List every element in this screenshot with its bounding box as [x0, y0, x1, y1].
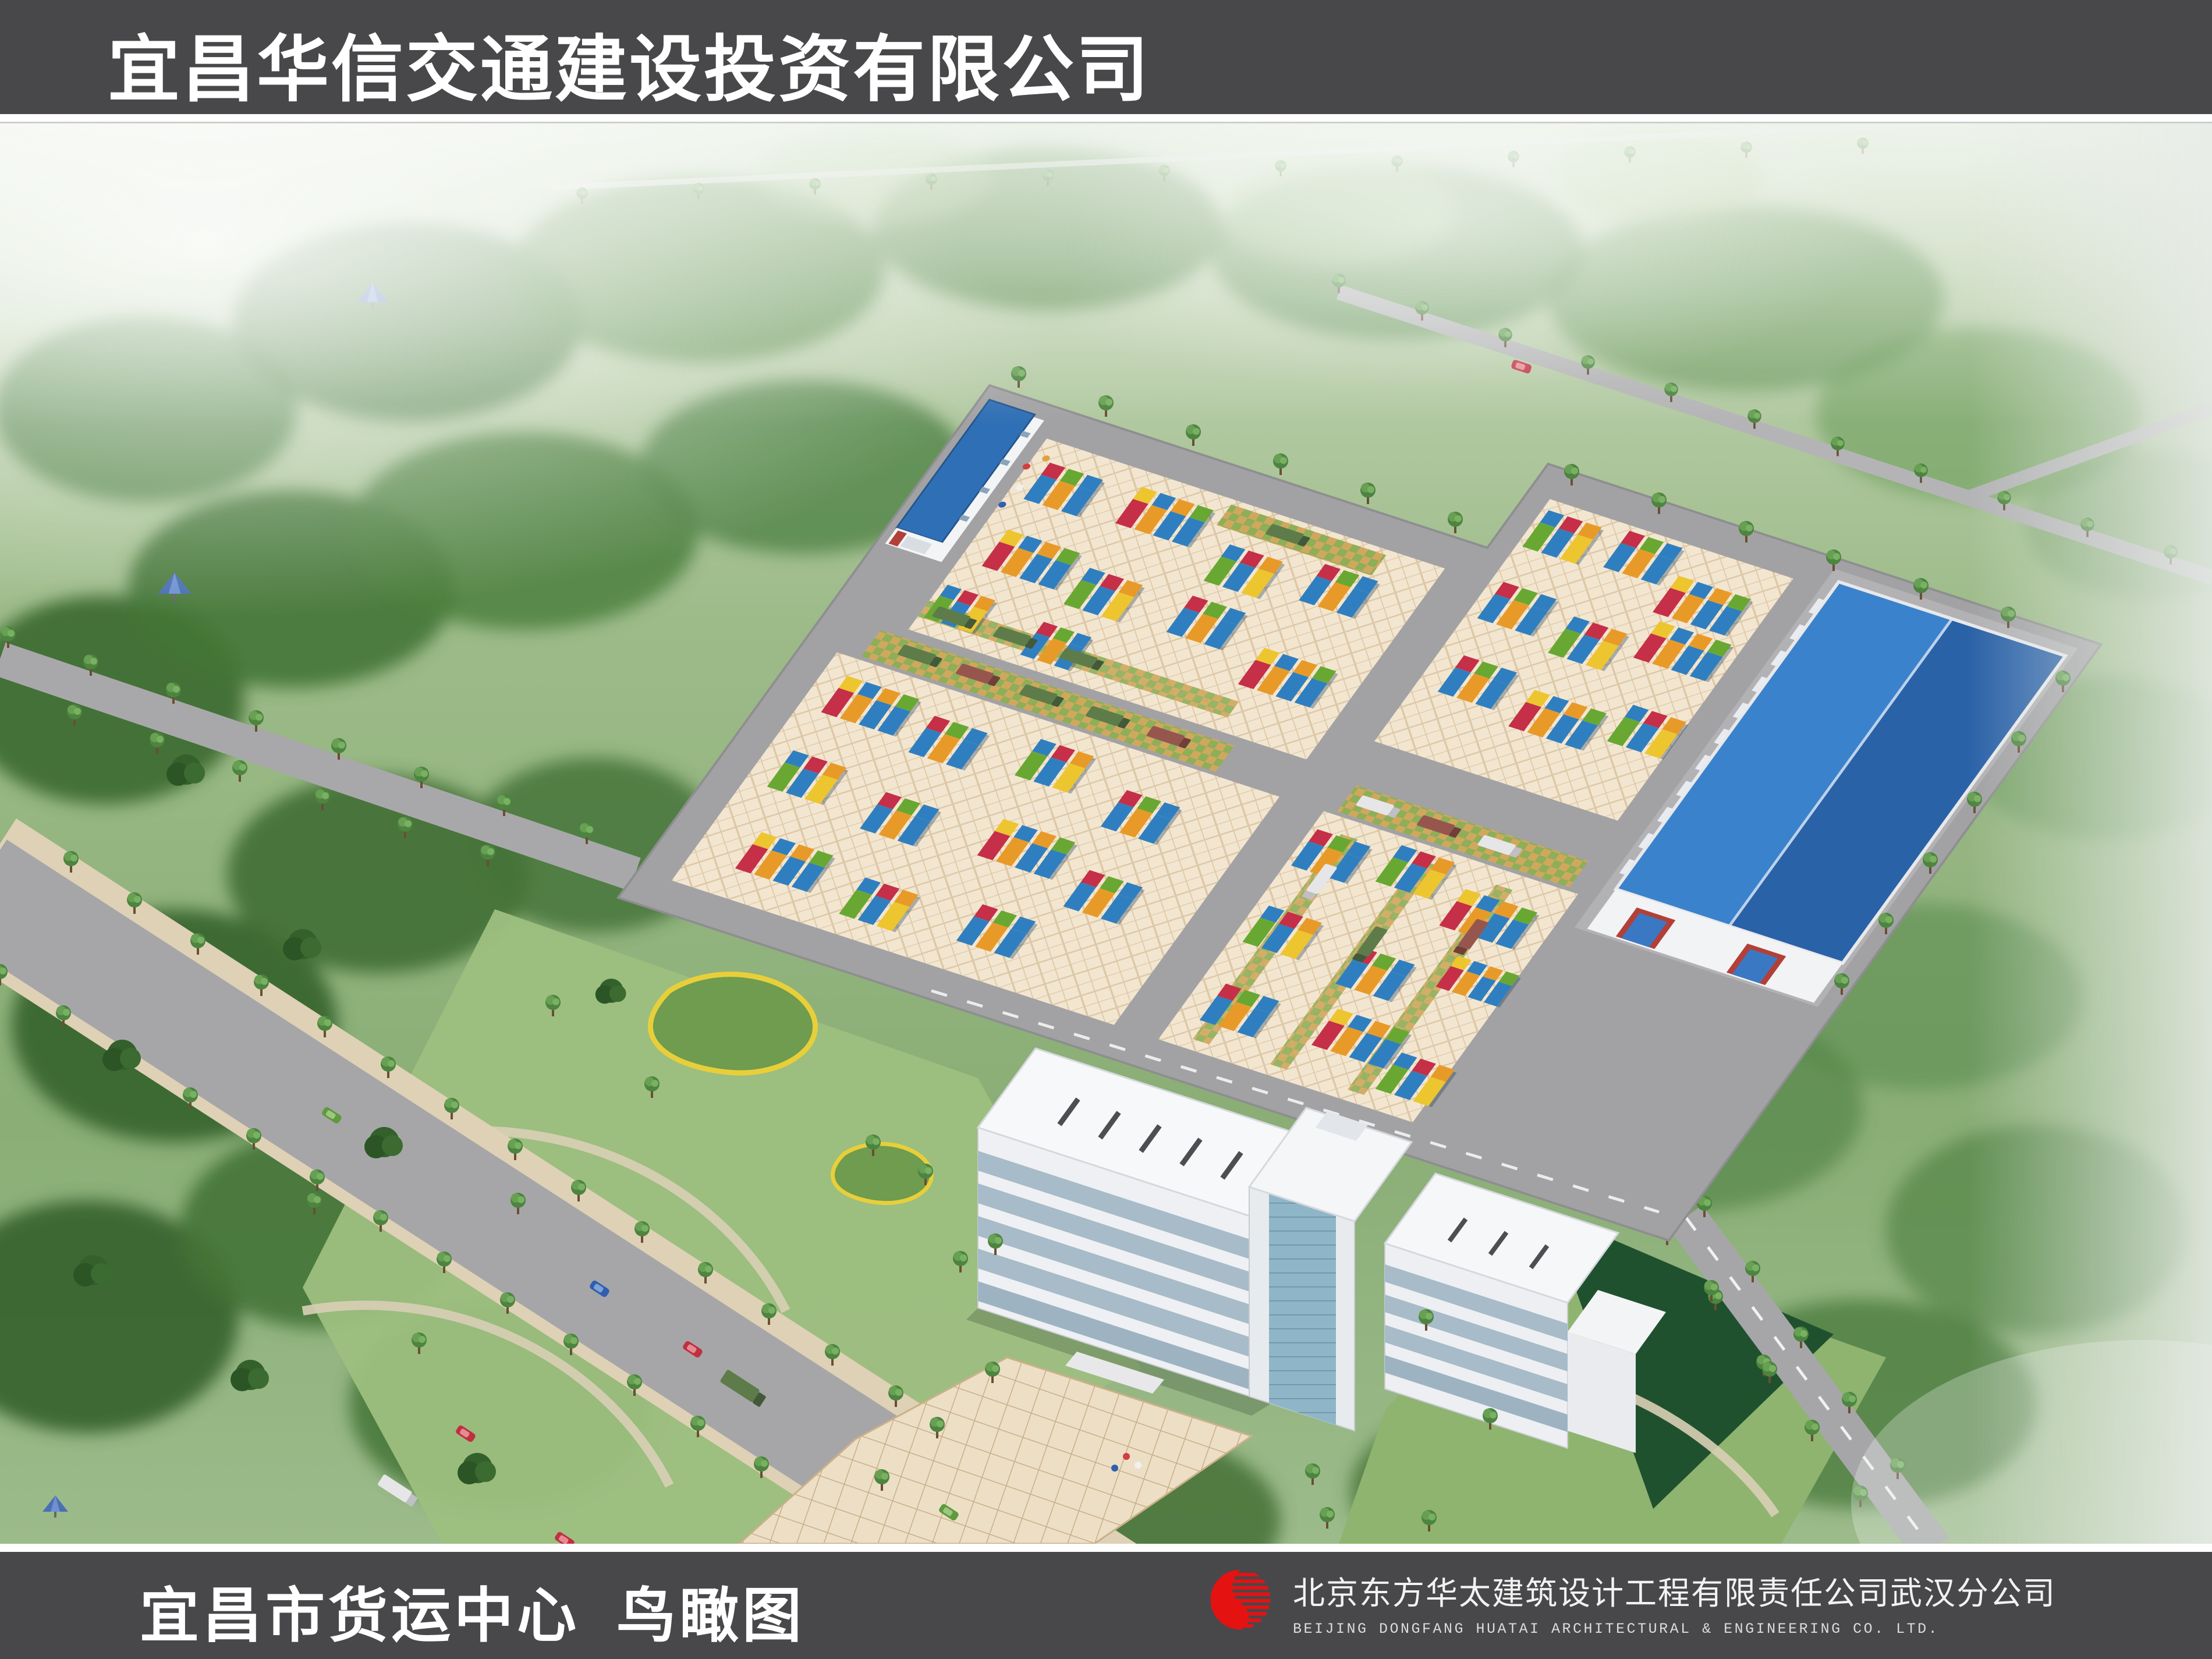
- footer-bar: 宜昌市货运中心 鸟瞰图 北京东方华太建筑设计工程有限责任: [0, 1552, 2212, 1659]
- flower-bed: [650, 974, 815, 1073]
- rendering-viewport: [0, 123, 2212, 1544]
- company-logo-icon: [1208, 1567, 1273, 1632]
- top-separator: [0, 114, 2212, 123]
- flower-bed: [832, 1144, 931, 1203]
- company-name-cn: 北京东方华太建筑设计工程有限责任公司武汉分公司: [1293, 1567, 2056, 1614]
- company-name-en: BEIJING DONGFANG HUATAI ARCHITECTURAL & …: [1293, 1621, 2056, 1637]
- header-bar: 宜昌华信交通建设投资有限公司: [0, 0, 2212, 114]
- header-title: 宜昌华信交通建设投资有限公司: [108, 10, 1151, 115]
- aerial-rendering: [0, 123, 2212, 1544]
- presentation-board: 宜昌华信交通建设投资有限公司: [0, 0, 2212, 1659]
- bottom-separator: [0, 1544, 2212, 1552]
- design-firm-brand: 北京东方华太建筑设计工程有限责任公司武汉分公司 BEIJING DONGFANG…: [1208, 1567, 2056, 1637]
- drawing-caption: 宜昌市货运中心 鸟瞰图: [140, 1568, 805, 1654]
